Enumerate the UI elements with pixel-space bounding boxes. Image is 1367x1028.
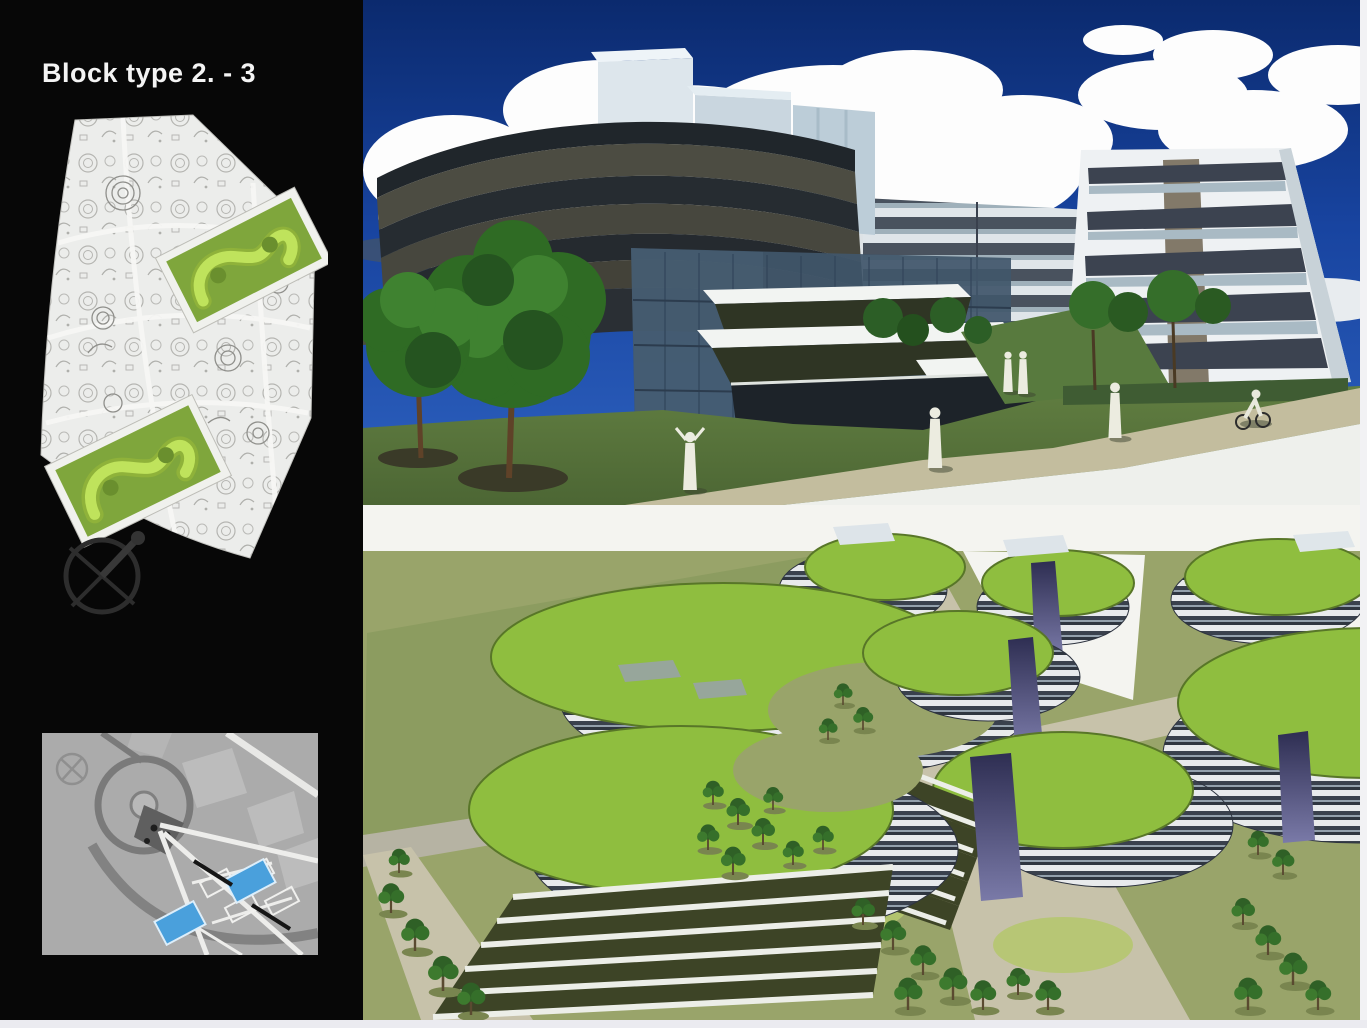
right-border bbox=[1360, 0, 1367, 1028]
presentation-slide: Block type 2. - 3 bbox=[0, 0, 1367, 1028]
sidebar: Block type 2. - 3 bbox=[0, 0, 363, 1020]
compass-icon bbox=[50, 518, 160, 628]
page-title: Block type 2. - 3 bbox=[42, 58, 256, 89]
bottom-border bbox=[0, 1020, 1367, 1028]
perspective-rendering bbox=[363, 0, 1360, 505]
site-plan-figure bbox=[28, 103, 328, 573]
lawn-circle bbox=[993, 917, 1133, 973]
renderings-panel bbox=[363, 0, 1360, 1020]
location-map-figure bbox=[42, 733, 318, 955]
aerial-rendering bbox=[363, 505, 1360, 1020]
